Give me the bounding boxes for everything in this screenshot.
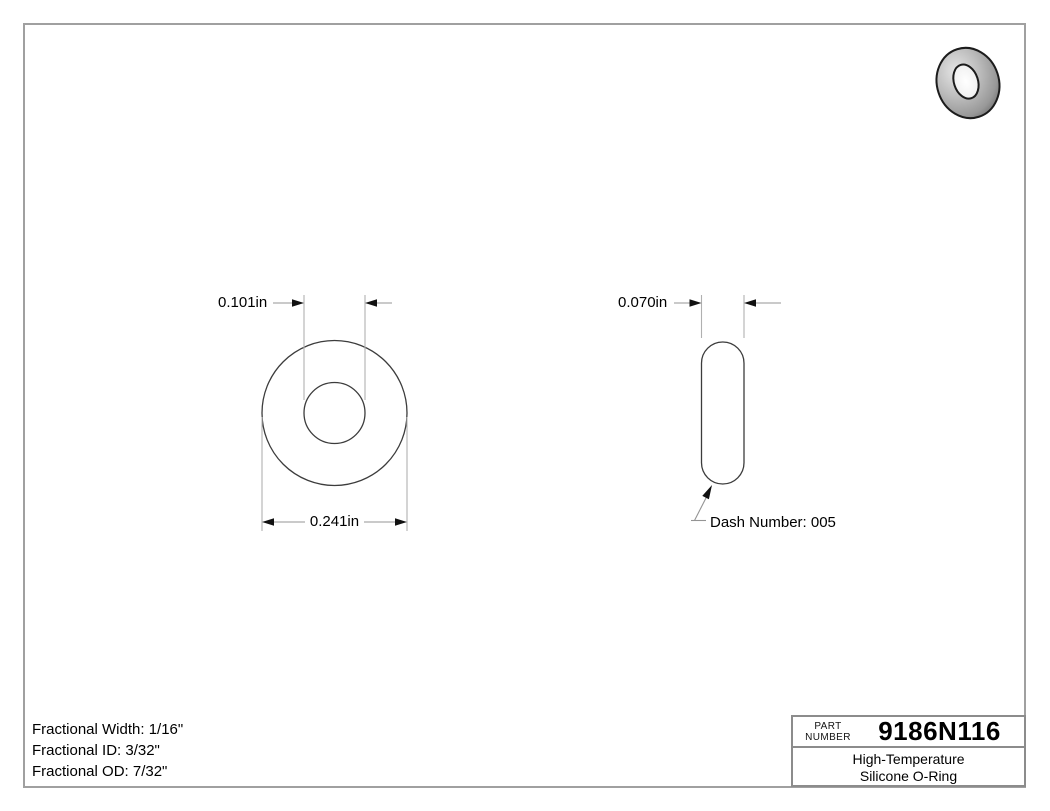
spec-fractional-width: Fractional Width: 1/16" [32,719,183,740]
dash-number-label: Dash Number: 005 [710,515,836,531]
id-dimension-label: 0.101in [218,295,267,311]
part-description-line1: High-Temperature [793,751,1024,768]
dash-number-leader [691,485,712,521]
side-view-capsule [702,342,745,484]
od-dimension-label: 0.241in [285,514,384,530]
id-dim-arrow-left [292,299,304,306]
width-dim-arrow-left [690,299,702,306]
part-description: High-Temperature Silicone O-Ring [793,748,1024,785]
id-dimension [273,295,392,400]
cross-section-width-label: 0.070in [618,295,667,311]
width-dim-arrow-right [744,299,756,306]
part-number-caption: PART NUMBER [793,721,863,743]
part-number-value: 9186N116 [863,716,1024,747]
od-dim-arrow-left [262,518,274,525]
title-block: PART NUMBER 9186N116 High-Temperature Si… [791,715,1026,787]
front-view-outer-circle [262,341,407,486]
od-dim-arrow-right [395,518,407,525]
spec-fractional-od: Fractional OD: 7/32" [32,761,183,782]
dash-leader-arrow [702,485,712,499]
drawing-page: 0.101in 0.241in 0.070in Dash Number: 005… [0,0,1050,811]
part-description-line2: Silicone O-Ring [793,768,1024,785]
width-dimension [674,295,781,338]
front-view [262,341,407,486]
spec-fractional-id: Fractional ID: 3/32" [32,740,183,761]
o-ring-3d-thumbnail [928,40,1009,127]
front-view-inner-circle [304,383,365,444]
id-dim-arrow-right [365,299,377,306]
drawing-geometry [0,0,1050,811]
title-block-part-row: PART NUMBER 9186N116 [793,717,1024,748]
side-view [702,342,745,484]
fractional-specs: Fractional Width: 1/16" Fractional ID: 3… [32,719,183,782]
